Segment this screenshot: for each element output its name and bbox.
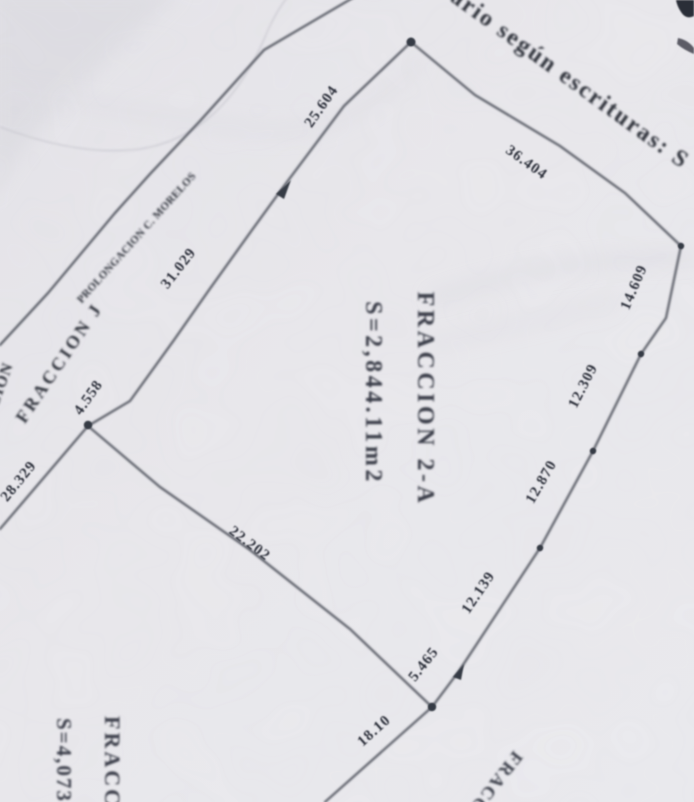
svg-text:S=2,844.11m2: S=2,844.11m2 <box>360 301 386 485</box>
svg-text:FRACCION 2-B: FRACCION 2-B <box>100 716 125 802</box>
svg-text:FRACCION 2-A: FRACCION 2-A <box>412 292 438 507</box>
svg-text:S=4,073.86m2: S=4,073.86m2 <box>52 718 76 802</box>
